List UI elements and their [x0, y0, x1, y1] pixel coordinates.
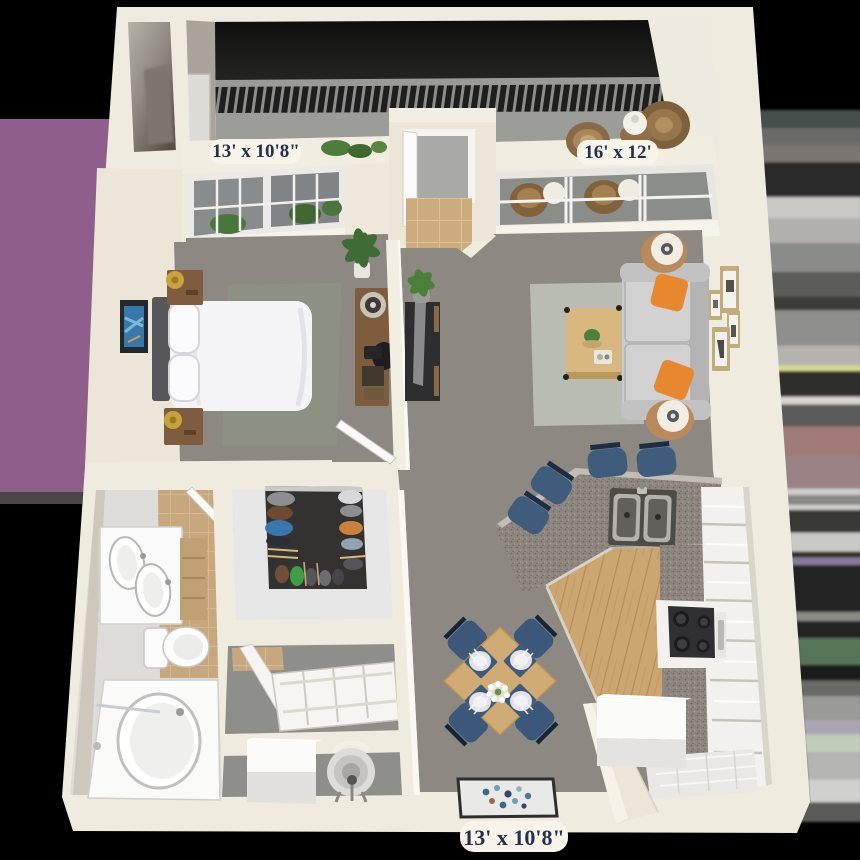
svg-text:13' x 10'8": 13' x 10'8": [463, 825, 564, 850]
svg-text:13' x 10'8": 13' x 10'8": [212, 141, 300, 162]
svg-text:16' x 12': 16' x 12': [584, 142, 652, 163]
